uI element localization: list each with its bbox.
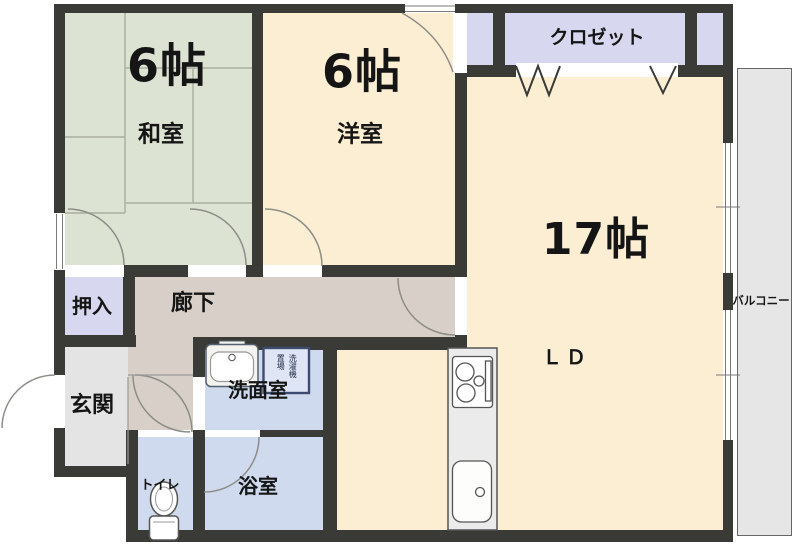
washitsu-name-label: 和室 (138, 122, 184, 147)
yoshitsu-name-label: 洋室 (337, 122, 383, 147)
folding-door-marks (516, 66, 676, 95)
genkan-door-arc (2, 375, 55, 428)
kitchen-counter (448, 348, 497, 530)
laundry-space-label-line1: 洗濯機 (288, 354, 297, 378)
bathroom-label: 浴室 (238, 475, 278, 497)
vestibule-door-arc-2 (133, 375, 190, 432)
closet-label: クロゼット (549, 28, 644, 49)
washroom-label: 洗面室 (228, 379, 288, 401)
oshiire-door-arc (68, 209, 124, 265)
yoshitsu-size-label: 6帖 (322, 47, 402, 98)
laundry-space-label-line2: 置場 (276, 354, 285, 370)
yoshitsu-door-arc (265, 209, 322, 266)
kitchen-sink-icon (453, 461, 492, 522)
balcony-label: バルコニー (732, 295, 789, 308)
stove-icon (453, 357, 493, 408)
washitsu-size-label: 6帖 (127, 41, 207, 92)
washitsu-door-arc (190, 209, 246, 265)
ld-name-label: ＬＤ (542, 346, 590, 368)
yoshitsu-top-door-arc (402, 13, 453, 72)
vestibule-door-arc-1 (135, 375, 192, 432)
genkan-label: 玄関 (70, 394, 114, 418)
ld-size-label: 17帖 (542, 216, 650, 264)
ld-door-arc (398, 278, 455, 335)
floorplan: 6帖 和室 6帖 洋室 クロゼット 17帖 ＬＤ 押入 廊下 玄関 洗面室 浴室… (0, 0, 800, 544)
toilet-label: トイレ (140, 479, 179, 493)
corridor-label: 廊下 (171, 292, 215, 316)
genkan-step-lines (128, 375, 193, 464)
oshiire-label: 押入 (72, 295, 112, 317)
